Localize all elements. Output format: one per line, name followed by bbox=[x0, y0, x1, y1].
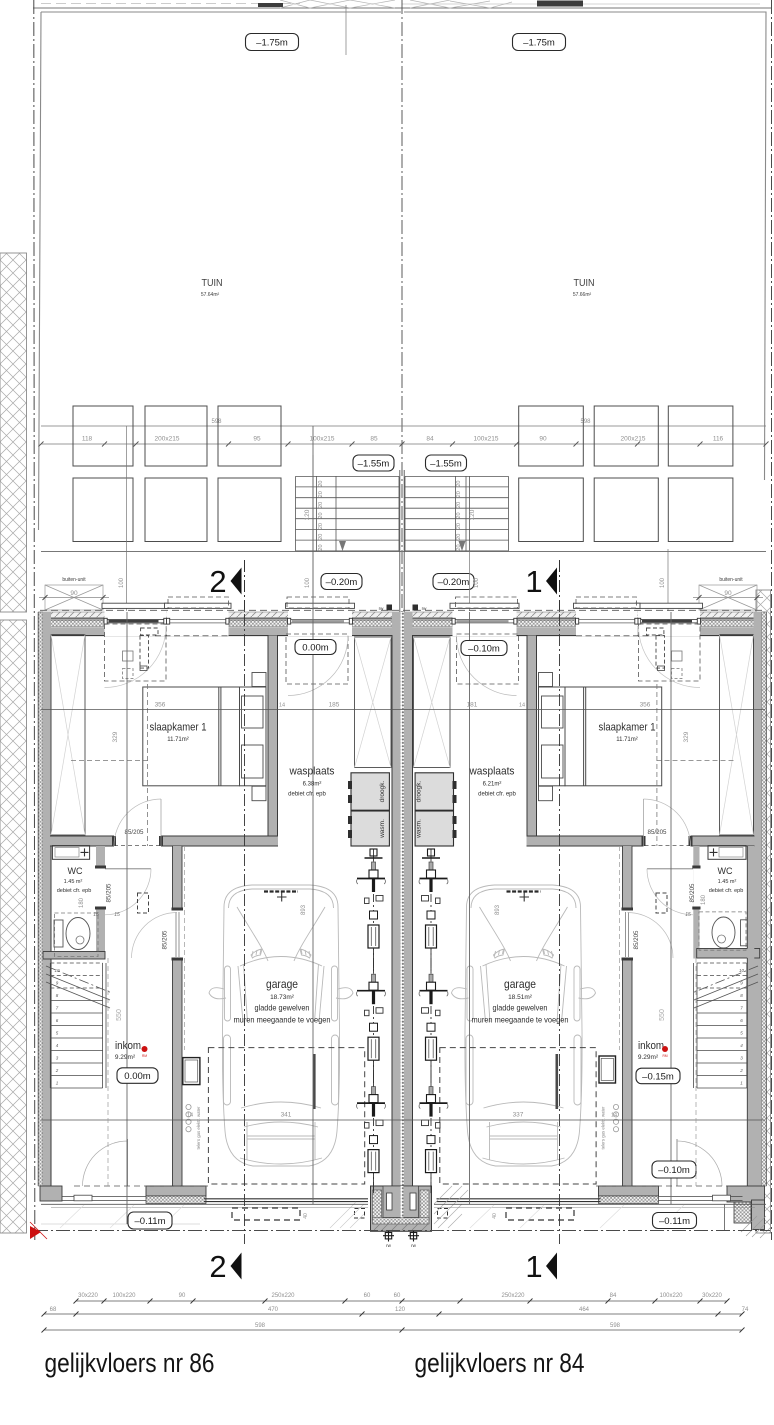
svg-text:100x220: 100x220 bbox=[659, 1293, 683, 1299]
svg-text:893: 893 bbox=[301, 904, 307, 915]
svg-text:inkom: inkom bbox=[115, 1040, 141, 1052]
svg-text:11.71m²: 11.71m² bbox=[167, 737, 189, 743]
svg-text:20: 20 bbox=[318, 523, 324, 529]
svg-text:85/205: 85/205 bbox=[689, 883, 696, 902]
svg-text:20: 20 bbox=[456, 491, 462, 497]
svg-text:40: 40 bbox=[492, 1213, 498, 1219]
svg-text:893: 893 bbox=[495, 904, 501, 915]
svg-text:WC: WC bbox=[68, 866, 83, 876]
svg-text:550: 550 bbox=[116, 1009, 123, 1021]
svg-text:1.45 m²: 1.45 m² bbox=[718, 879, 737, 885]
svg-text:85/205: 85/205 bbox=[106, 883, 113, 902]
svg-text:14: 14 bbox=[187, 1113, 193, 1119]
svg-text:100: 100 bbox=[474, 577, 480, 588]
svg-text:100: 100 bbox=[660, 577, 666, 588]
svg-text:inkom: inkom bbox=[638, 1040, 664, 1052]
svg-text:2: 2 bbox=[209, 564, 226, 599]
svg-text:wasplaats: wasplaats bbox=[469, 766, 515, 778]
svg-text:14: 14 bbox=[611, 1113, 617, 1119]
svg-text:180: 180 bbox=[701, 894, 707, 905]
svg-text:341: 341 bbox=[281, 1112, 292, 1119]
svg-text:180: 180 bbox=[79, 897, 85, 908]
svg-text:rw: rw bbox=[411, 1243, 416, 1248]
svg-text:buiten-unit: buiten-unit bbox=[719, 577, 743, 583]
svg-text:WC: WC bbox=[718, 866, 733, 876]
svg-text:200x215: 200x215 bbox=[621, 436, 646, 443]
svg-text:20: 20 bbox=[456, 481, 462, 487]
svg-text:356: 356 bbox=[640, 702, 651, 709]
svg-text:85/205: 85/205 bbox=[125, 829, 144, 836]
svg-text:gelijkvloers nr 84: gelijkvloers nr 84 bbox=[415, 1348, 585, 1378]
svg-text:9.29m²: 9.29m² bbox=[115, 1054, 136, 1061]
svg-text:100x220: 100x220 bbox=[112, 1293, 136, 1299]
svg-text:2: 2 bbox=[739, 1068, 743, 1073]
svg-text:329: 329 bbox=[112, 731, 119, 742]
svg-text:muren meegaande te voegen: muren meegaande te voegen bbox=[472, 1015, 569, 1025]
svg-text:100x215: 100x215 bbox=[474, 436, 499, 443]
svg-text:–0.11m: –0.11m bbox=[135, 1216, 166, 1227]
svg-text:gladde gewelven: gladde gewelven bbox=[493, 1003, 548, 1013]
svg-text:RM: RM bbox=[142, 1054, 147, 1058]
svg-text:250x220: 250x220 bbox=[501, 1293, 525, 1299]
svg-text:598: 598 bbox=[580, 419, 591, 425]
svg-text:10: 10 bbox=[739, 968, 745, 973]
svg-text:–1.75m: –1.75m bbox=[523, 37, 555, 48]
svg-text:droogk.: droogk. bbox=[416, 780, 423, 802]
svg-text:–0.20m: –0.20m bbox=[326, 577, 358, 588]
svg-text:15: 15 bbox=[93, 912, 99, 918]
svg-text:–0.15m: –0.15m bbox=[642, 1071, 674, 1082]
svg-text:15: 15 bbox=[685, 912, 691, 918]
svg-text:598: 598 bbox=[211, 419, 222, 425]
svg-text:185: 185 bbox=[329, 702, 340, 709]
svg-text:telers gas elektr. water: telers gas elektr. water bbox=[601, 1106, 606, 1150]
svg-text:1: 1 bbox=[525, 564, 542, 599]
svg-text:1.45 m²: 1.45 m² bbox=[64, 879, 83, 885]
svg-text:muren meegaande te voegen: muren meegaande te voegen bbox=[234, 1015, 331, 1025]
svg-text:18.73m²: 18.73m² bbox=[270, 994, 295, 1001]
svg-text:telers gas elektr. water: telers gas elektr. water bbox=[196, 1106, 201, 1150]
svg-text:6.38m²: 6.38m² bbox=[303, 782, 322, 788]
svg-text:buiten-unit: buiten-unit bbox=[62, 577, 86, 583]
svg-text:598: 598 bbox=[610, 1323, 621, 1329]
svg-text:debiet cfr. epb: debiet cfr. epb bbox=[709, 888, 744, 894]
svg-text:0.00m: 0.00m bbox=[302, 642, 328, 653]
svg-text:20: 20 bbox=[318, 512, 324, 518]
svg-text:rw: rw bbox=[379, 606, 384, 611]
svg-text:550: 550 bbox=[659, 1009, 666, 1021]
svg-text:wasplaats: wasplaats bbox=[289, 766, 335, 778]
svg-text:60: 60 bbox=[364, 1293, 371, 1299]
svg-text:11.71m²: 11.71m² bbox=[616, 737, 638, 743]
svg-text:gelijkvloers nr 86: gelijkvloers nr 86 bbox=[45, 1348, 215, 1378]
svg-text:wasm.: wasm. bbox=[416, 819, 423, 839]
svg-text:30x220: 30x220 bbox=[78, 1293, 98, 1299]
svg-text:debiet cfr. epb: debiet cfr. epb bbox=[288, 792, 326, 798]
svg-text:118: 118 bbox=[82, 436, 93, 443]
svg-text:90: 90 bbox=[539, 436, 547, 443]
svg-text:garage: garage bbox=[266, 977, 298, 991]
svg-text:464: 464 bbox=[579, 1307, 590, 1313]
svg-text:–1.55m: –1.55m bbox=[358, 458, 390, 469]
svg-text:30x220: 30x220 bbox=[702, 1293, 722, 1299]
svg-text:18.51m²: 18.51m² bbox=[508, 994, 533, 1001]
svg-text:470: 470 bbox=[268, 1307, 279, 1313]
svg-text:15: 15 bbox=[114, 912, 120, 918]
svg-text:garage: garage bbox=[504, 977, 536, 991]
svg-text:–0.10m: –0.10m bbox=[468, 643, 500, 654]
svg-text:90: 90 bbox=[724, 590, 732, 597]
svg-text:84: 84 bbox=[610, 1293, 617, 1299]
svg-text:14: 14 bbox=[279, 703, 285, 709]
svg-text:2: 2 bbox=[55, 1068, 59, 1073]
svg-text:74: 74 bbox=[742, 1307, 749, 1313]
svg-text:181: 181 bbox=[467, 702, 478, 709]
svg-text:200x215: 200x215 bbox=[155, 436, 180, 443]
svg-text:356: 356 bbox=[155, 702, 166, 709]
svg-text:20: 20 bbox=[318, 544, 324, 550]
svg-text:68: 68 bbox=[50, 1307, 57, 1313]
svg-text:20: 20 bbox=[456, 534, 462, 540]
svg-text:84: 84 bbox=[426, 436, 434, 443]
svg-text:0.00m: 0.00m bbox=[124, 1071, 150, 1082]
svg-text:TUIN: TUIN bbox=[574, 277, 595, 289]
svg-text:20: 20 bbox=[318, 534, 324, 540]
svg-text:60: 60 bbox=[394, 1293, 401, 1299]
svg-text:slaapkamer 1: slaapkamer 1 bbox=[599, 722, 656, 734]
svg-text:100: 100 bbox=[305, 577, 311, 588]
svg-text:–0.10m: –0.10m bbox=[658, 1165, 690, 1176]
svg-text:20: 20 bbox=[456, 523, 462, 529]
svg-text:debiet cfr. epb: debiet cfr. epb bbox=[57, 888, 92, 894]
svg-text:debiet cfr. epb: debiet cfr. epb bbox=[478, 792, 516, 798]
svg-text:droogk.: droogk. bbox=[379, 780, 386, 802]
svg-text:6.21m²: 6.21m² bbox=[483, 782, 502, 788]
svg-text:120: 120 bbox=[395, 1307, 406, 1313]
svg-text:57.64m²: 57.64m² bbox=[201, 292, 220, 298]
svg-text:337: 337 bbox=[513, 1112, 524, 1119]
svg-text:90: 90 bbox=[70, 590, 78, 597]
svg-text:40: 40 bbox=[303, 1213, 309, 1219]
svg-text:100: 100 bbox=[119, 577, 125, 588]
svg-text:–1.55m: –1.55m bbox=[430, 458, 462, 469]
svg-text:gladde gewelven: gladde gewelven bbox=[255, 1003, 310, 1013]
svg-text:20: 20 bbox=[318, 481, 324, 487]
svg-text:120: 120 bbox=[304, 509, 311, 520]
svg-text:10: 10 bbox=[54, 968, 60, 973]
svg-text:9.29m²: 9.29m² bbox=[638, 1054, 659, 1061]
svg-text:95: 95 bbox=[253, 436, 261, 443]
svg-text:slaapkamer 1: slaapkamer 1 bbox=[150, 722, 207, 734]
svg-text:20: 20 bbox=[318, 491, 324, 497]
svg-text:250x220: 250x220 bbox=[271, 1293, 295, 1299]
svg-text:20: 20 bbox=[456, 502, 462, 508]
svg-text:598: 598 bbox=[255, 1323, 266, 1329]
svg-text:20: 20 bbox=[456, 512, 462, 518]
svg-text:116: 116 bbox=[713, 436, 724, 443]
svg-text:rw: rw bbox=[386, 1243, 391, 1248]
svg-text:85/205: 85/205 bbox=[633, 930, 640, 949]
svg-text:2: 2 bbox=[209, 1249, 226, 1284]
svg-text:–0.11m: –0.11m bbox=[659, 1216, 690, 1227]
svg-text:1: 1 bbox=[525, 1249, 542, 1284]
svg-text:–0.20m: –0.20m bbox=[438, 577, 470, 588]
svg-text:57.66m²: 57.66m² bbox=[573, 292, 592, 298]
svg-text:120: 120 bbox=[469, 509, 476, 520]
svg-text:20: 20 bbox=[318, 502, 324, 508]
svg-text:TUIN: TUIN bbox=[202, 277, 223, 289]
svg-text:RM: RM bbox=[663, 1054, 668, 1058]
svg-text:wasm.: wasm. bbox=[379, 819, 386, 839]
svg-text:329: 329 bbox=[683, 731, 690, 742]
svg-text:90: 90 bbox=[179, 1293, 186, 1299]
svg-text:rw: rw bbox=[422, 606, 427, 611]
svg-text:14: 14 bbox=[519, 703, 525, 709]
svg-text:85/205: 85/205 bbox=[162, 930, 169, 949]
svg-text:85: 85 bbox=[370, 436, 378, 443]
svg-text:–1.75m: –1.75m bbox=[256, 37, 288, 48]
